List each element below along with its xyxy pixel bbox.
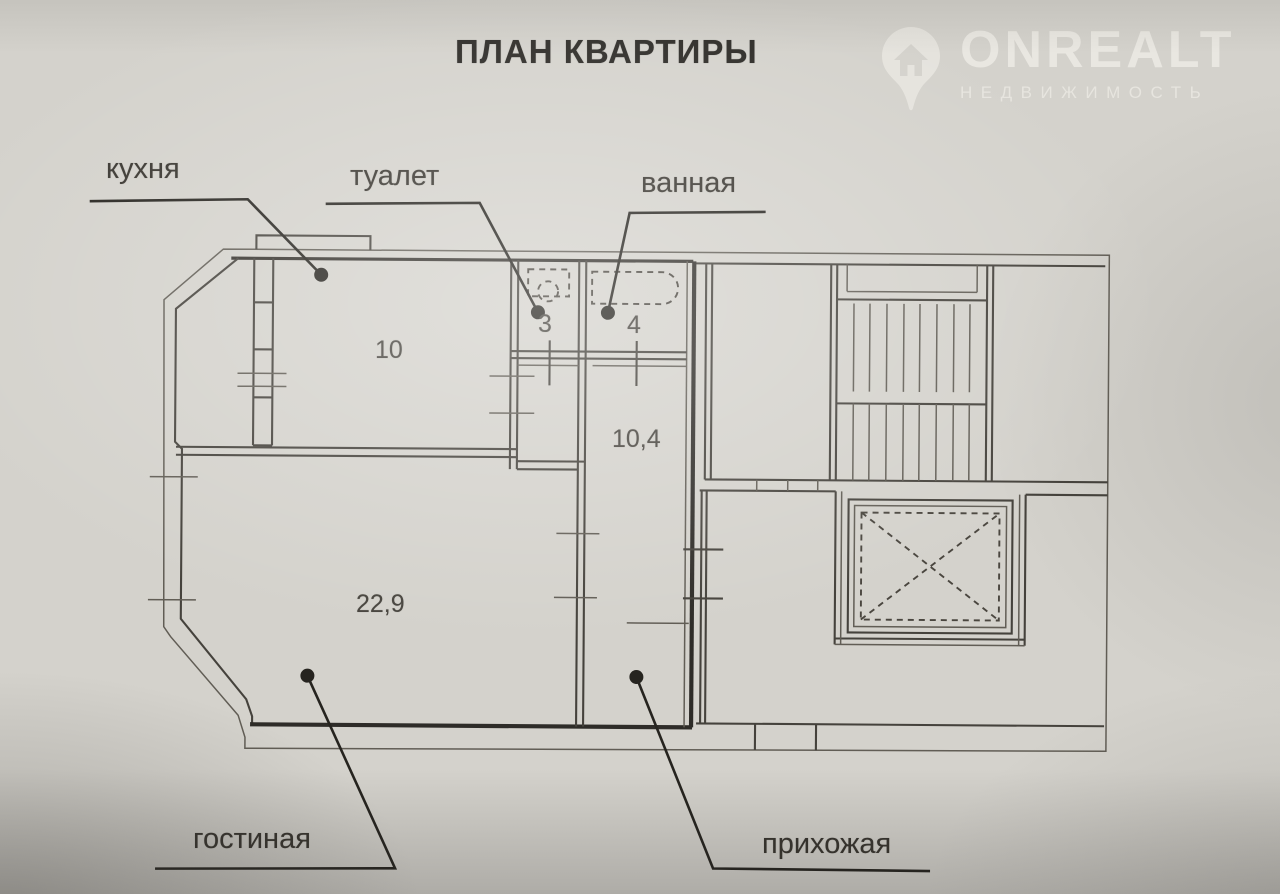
room-area-toilet: 3 [538,310,552,339]
building-common-walls [696,263,1109,752]
page-title: ПЛАН КВАРТИРЫ [455,33,758,71]
leader-lines [85,198,935,874]
stairwell [830,264,994,481]
elevator-shaft [835,491,1026,645]
stair-treads-lower [853,403,970,481]
hallway-walls [627,549,724,624]
kitchen-leader-dot [314,268,328,282]
room-label-toilet: туалет [350,160,439,193]
room-area-living-room: 22,9 [356,590,405,619]
room-area-hallway: 10,4 [612,425,661,454]
bathroom-leader-dot [601,306,615,320]
hallway-leader-dot [629,670,643,684]
living-leader-dot [300,669,314,683]
bathtub-fixture [592,272,678,305]
living-room-walls [147,258,601,727]
room-label-living-room: гостиная [193,823,311,856]
room-label-kitchen: кухня [106,153,180,186]
room-area-bathroom: 4 [627,311,641,340]
stair-treads-upper [853,303,970,392]
toilet-leader [325,202,539,312]
room-area-kitchen: 10 [375,336,403,365]
scanned-floor-plan-page: ПЛАН КВАРТИРЫ ONREALT НЕДВИЖИМОСТЬ [0,0,1280,894]
toilet-bathroom-walls [510,340,686,386]
room-label-bathroom: ванная [641,167,736,200]
room-label-hallway: прихожая [762,828,891,861]
toilet-fixture [528,269,569,301]
